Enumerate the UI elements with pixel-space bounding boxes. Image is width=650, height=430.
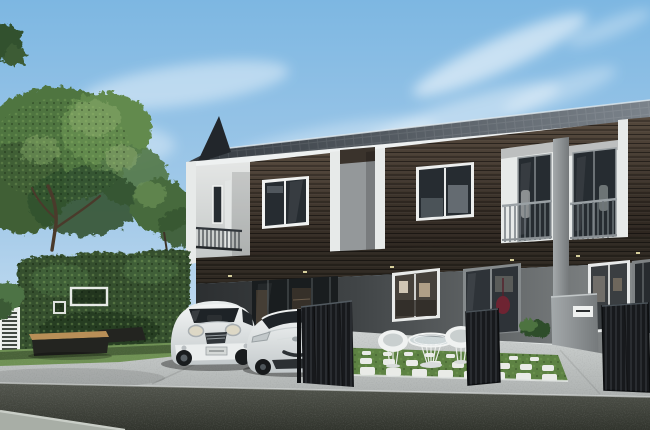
- hedge-small-frame: [54, 302, 65, 313]
- frame-trim-left: [186, 161, 196, 265]
- scene-canvas: [0, 0, 650, 430]
- frame-trim-right: [618, 119, 628, 239]
- porch-post: [225, 180, 231, 249]
- narrow-window: [213, 186, 222, 223]
- mini-headlight-right: [226, 325, 241, 336]
- frame-trim-mid1: [330, 151, 340, 253]
- mini-headlight-left: [189, 326, 204, 337]
- window-unit2-sliding: [416, 162, 474, 221]
- mini-hood-scoop: [207, 315, 222, 321]
- frame-trim-mid2: [375, 148, 385, 252]
- gate-folding-left[interactable]: [297, 301, 354, 387]
- gate-panel-right[interactable]: [602, 303, 650, 392]
- balcony-left-railing: [196, 228, 242, 250]
- gate-panel-center[interactable]: [466, 309, 500, 385]
- window-ground-1: [392, 268, 440, 322]
- balcony-a: [501, 142, 553, 244]
- balcony-b: [569, 140, 618, 241]
- window-unit1-upper: [262, 176, 309, 229]
- townhouse-exterior-photo: Architectural rendering of a modern two-…: [0, 0, 650, 430]
- hedge-signboard: [71, 288, 107, 305]
